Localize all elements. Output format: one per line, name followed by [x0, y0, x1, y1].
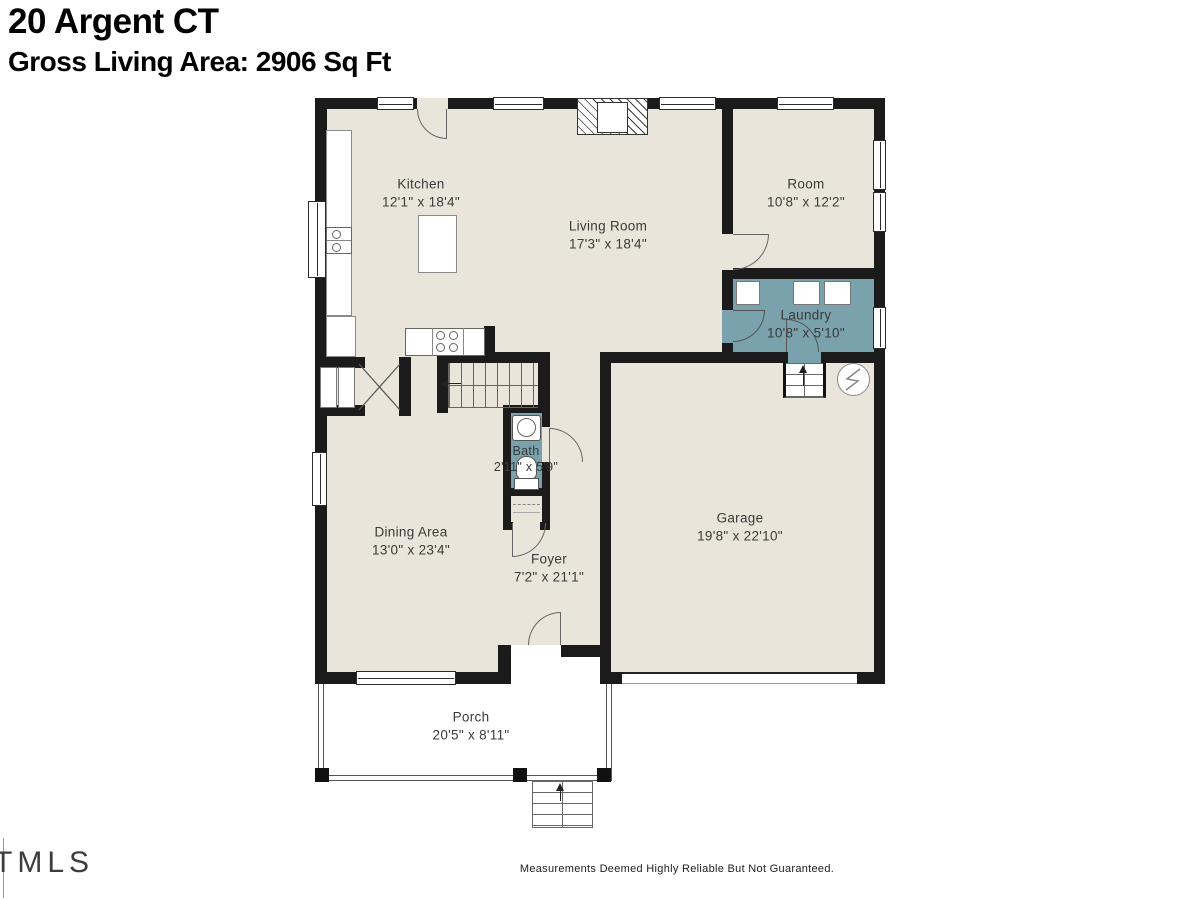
bath-sink-basin [517, 418, 536, 437]
room-door-opening [722, 234, 733, 270]
window [873, 307, 886, 349]
laundry-door-opening [722, 310, 733, 343]
porch-label: Porch20'5" x 8'11" [433, 708, 510, 743]
laundry-stair-opening [788, 352, 821, 363]
counter-divider [463, 328, 464, 356]
burner [449, 331, 458, 340]
laundry-label: Laundry10'8" x 5'10" [767, 306, 845, 341]
floor-plan-page: 20 Argent CT Gross Living Area: 2906 Sq … [0, 0, 1200, 900]
window [312, 452, 327, 506]
sink-divider [327, 240, 351, 241]
water-heater-coil-icon [838, 364, 869, 395]
wall-segment [498, 645, 511, 684]
garage-stair-arrow-stem [803, 372, 804, 386]
dining-area-label: Dining Area13'0" x 23'4" [372, 523, 450, 558]
sink-basin [332, 243, 341, 252]
porch-post [513, 768, 527, 782]
stair-arrow-stem [447, 383, 461, 384]
window [873, 140, 886, 190]
sink-basin [332, 230, 341, 239]
burner [436, 343, 445, 352]
closet-shelf-dashed [513, 504, 540, 505]
kitchen-island [418, 215, 457, 273]
window [308, 201, 326, 278]
stair-direction-arrow [440, 379, 448, 389]
window [873, 192, 886, 232]
burner [436, 331, 445, 340]
wall-segment [600, 352, 611, 684]
washer [793, 281, 820, 305]
counter-divider [432, 328, 433, 356]
kitchen-door-opening [417, 98, 448, 109]
disclaimer-text: Measurements Deemed Highly Reliable But … [477, 863, 877, 875]
garage-label: Garage19'8" x 22'10" [697, 509, 783, 544]
wall-segment [484, 326, 495, 354]
kitchen-cabinet [326, 316, 356, 357]
wall-segment [561, 645, 611, 657]
firebox [597, 102, 628, 133]
window [659, 97, 716, 110]
wall-segment [600, 352, 885, 363]
dryer [824, 281, 851, 305]
mls-logo: TMLS [0, 846, 94, 880]
entry-recess-floor [511, 657, 600, 684]
bath-label: Bath2'11" x 5'9" [494, 443, 558, 476]
closet-rod [513, 512, 540, 513]
porch-post [315, 768, 329, 782]
closet-door-leaf [320, 367, 337, 408]
closet-door-leaf [338, 367, 355, 408]
gross-living-area: Gross Living Area: 2906 Sq Ft [8, 46, 391, 78]
window [777, 97, 834, 110]
window [493, 97, 544, 110]
burner [449, 343, 458, 352]
front-door-opening [511, 645, 561, 657]
wall-segment [538, 352, 550, 413]
window [356, 671, 456, 685]
address-title: 20 Argent CT [8, 2, 219, 42]
range-counter [405, 328, 485, 356]
toilet-tank [514, 478, 539, 490]
window [377, 97, 414, 110]
laundry-cabinet [736, 281, 760, 305]
garage-door-opening [622, 672, 857, 684]
water-heater [837, 363, 870, 396]
kitchen-label: Kitchen12'1" x 18'4" [382, 175, 460, 210]
wall-segment [722, 268, 885, 279]
kitchen-counter [326, 130, 352, 316]
stair-rail-line [448, 385, 538, 386]
double-door-x-icon [357, 362, 402, 412]
room-label: Room10'8" x 12'2" [767, 175, 845, 210]
foyer-label: Foyer7'2" x 21'1" [514, 550, 584, 585]
porch-steps-arrow-stem [560, 790, 561, 801]
porch-post [597, 768, 611, 782]
living-room-label: Living Room17'3" x 18'4" [569, 217, 647, 252]
